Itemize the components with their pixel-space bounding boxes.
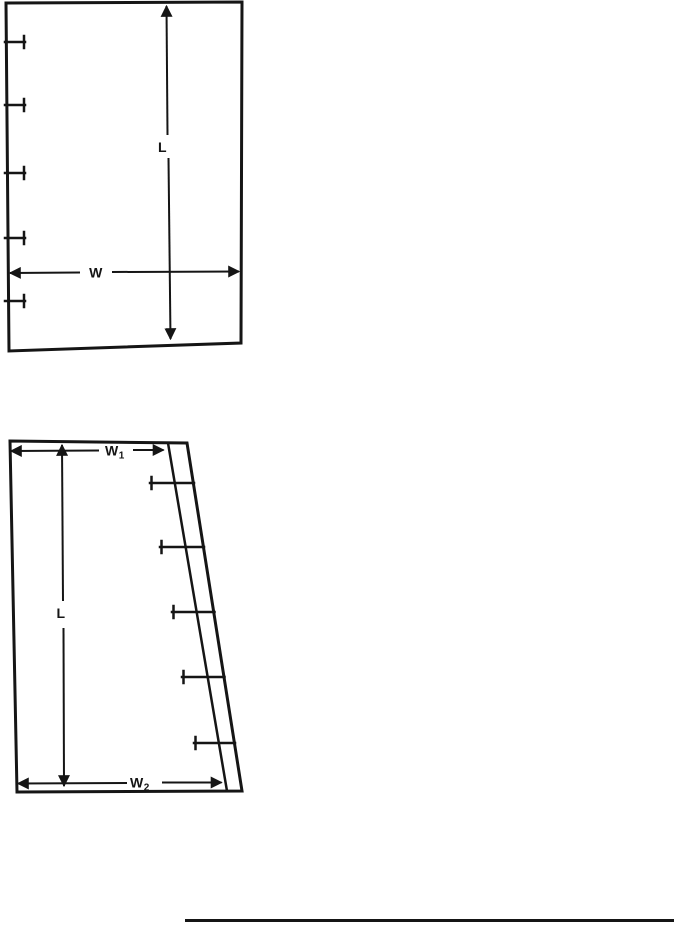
panel-outline xyxy=(10,441,242,792)
bottom-width-label-main: W xyxy=(130,775,144,791)
seam-line xyxy=(168,443,227,791)
bottom-width-dimension-line-left xyxy=(18,783,127,784)
top-width-label-main: W xyxy=(105,443,119,459)
width-dimension-line-right xyxy=(112,272,239,273)
fastener-tick xyxy=(172,606,215,618)
length-dimension-line-upper xyxy=(62,445,63,601)
length-dimension-line-lower xyxy=(64,628,65,786)
panel-outline xyxy=(6,2,242,351)
tapered-panel-figure: W1 L W2 xyxy=(0,430,260,815)
fastener-tick xyxy=(160,541,204,553)
width-label: W xyxy=(89,265,103,281)
length-label: L xyxy=(56,605,65,621)
length-dimension-line-lower xyxy=(169,158,171,339)
fastener-tick xyxy=(5,36,25,48)
fastener-tick xyxy=(194,737,235,749)
length-dimension-line-upper xyxy=(167,6,168,135)
width-dimension-line-left xyxy=(10,273,80,274)
footer-rule xyxy=(185,919,674,922)
rectangular-panel-figure: L W xyxy=(0,0,260,365)
top-width-dimension-line-left xyxy=(11,451,99,452)
fastener-tick xyxy=(150,477,194,489)
fastener-tick xyxy=(182,671,225,683)
top-width-label: W1 xyxy=(105,443,125,462)
length-label: L xyxy=(158,139,167,155)
top-width-label-subscript: 1 xyxy=(119,451,125,462)
bottom-width-label-subscript: 2 xyxy=(144,783,150,794)
